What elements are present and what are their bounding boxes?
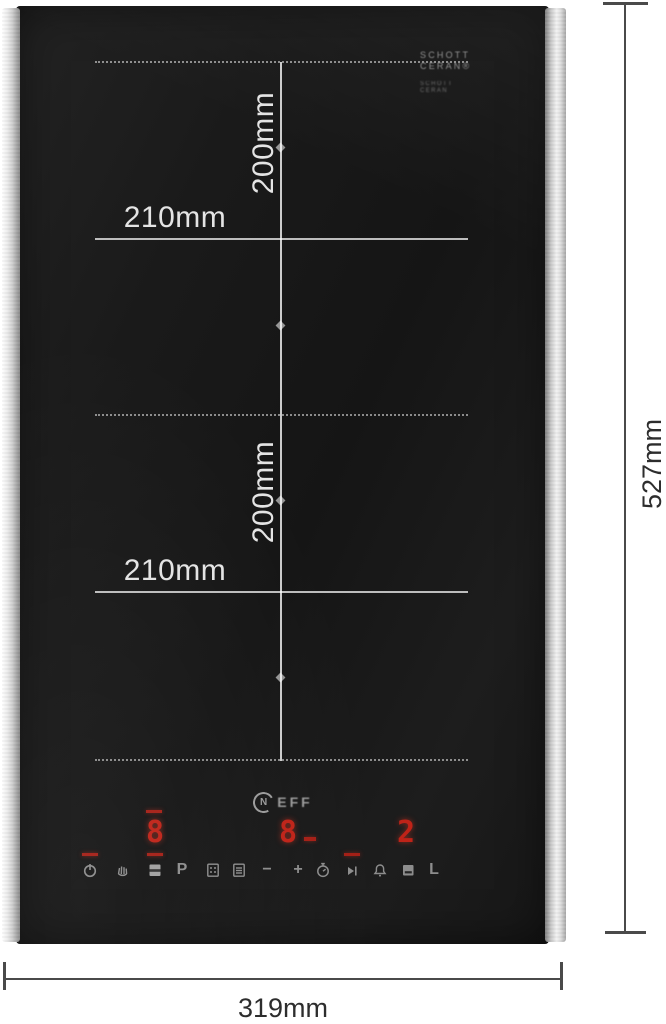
dimension-arrow-tick: [276, 673, 286, 683]
lock-text: L: [429, 859, 439, 881]
glass-brand-print: SCHOTT CERAN® SCHOTT CERAN: [420, 50, 502, 95]
induction-hob: 200mm 210mm 200mm 210mm SCHOTT CERAN®: [2, 6, 566, 944]
sensor-pad-icon: [202, 859, 224, 881]
power-key-indicator-bar: [82, 853, 98, 856]
plus-text: +: [293, 859, 302, 881]
height-dim-line: [624, 3, 626, 934]
skip-key-indicator-bar: [344, 853, 360, 856]
skip-bar-icon: [341, 859, 363, 881]
steel-trim-right: [545, 8, 566, 942]
middle-display-dash: [304, 837, 316, 841]
small-print-line2: CERAN: [420, 88, 502, 95]
wipe-hand-icon: [112, 859, 134, 881]
display-pad-icon: [397, 859, 419, 881]
left-display-indicator-bar: [146, 810, 162, 813]
neff-logo-ring: N: [251, 789, 277, 815]
neff-logo-text: EFF: [277, 794, 312, 810]
width-dim-line: [3, 978, 563, 980]
bell-icon: [369, 859, 391, 881]
display-middle-digit: 8: [279, 818, 297, 848]
lock-label: L: [423, 859, 445, 881]
program-pad-icon: [228, 859, 250, 881]
schott-print-line1: SCHOTT: [420, 50, 502, 61]
display-right-digit: 2: [397, 818, 415, 848]
product-diagram-canvas: 200mm 210mm 200mm 210mm SCHOTT CERAN®: [0, 0, 666, 1024]
minus-label: −: [256, 859, 278, 881]
zone2-depth-label: 200mm: [249, 432, 279, 552]
zone-key-indicator-bar: [147, 853, 163, 856]
width-dimension-label: 319mm: [183, 993, 383, 1024]
powerboost-text: P: [177, 859, 188, 881]
zone-select-icon: [144, 859, 166, 881]
display-left-digit: 8: [146, 818, 164, 848]
plus-label: +: [287, 859, 309, 881]
zone2-width-label: 210mm: [95, 555, 255, 587]
zone-center-line: [280, 62, 282, 761]
height-dim-bottom-tick: [605, 931, 646, 934]
height-dimension-label: 527mm: [638, 399, 666, 529]
small-print-line1: SCHOTT: [420, 81, 502, 88]
neff-logo: N EFF: [233, 792, 333, 812]
width-dim-left-tick: [3, 962, 6, 990]
zone1-depth-label: 200mm: [249, 83, 279, 203]
width-dim-right-tick: [560, 962, 563, 990]
neff-logo-n: N: [260, 796, 267, 807]
power-icon: [79, 859, 101, 881]
timer-icon: [312, 859, 334, 881]
powerboost-label: P: [171, 859, 193, 881]
steel-trim-left: [2, 8, 20, 942]
minus-text: −: [262, 859, 271, 881]
ceramic-glass-surface: 200mm 210mm 200mm 210mm SCHOTT CERAN®: [16, 6, 549, 944]
zone1-width-label: 210mm: [95, 202, 255, 234]
dimension-arrow-tick: [276, 321, 286, 331]
schott-print-line2: CERAN®: [420, 61, 502, 72]
